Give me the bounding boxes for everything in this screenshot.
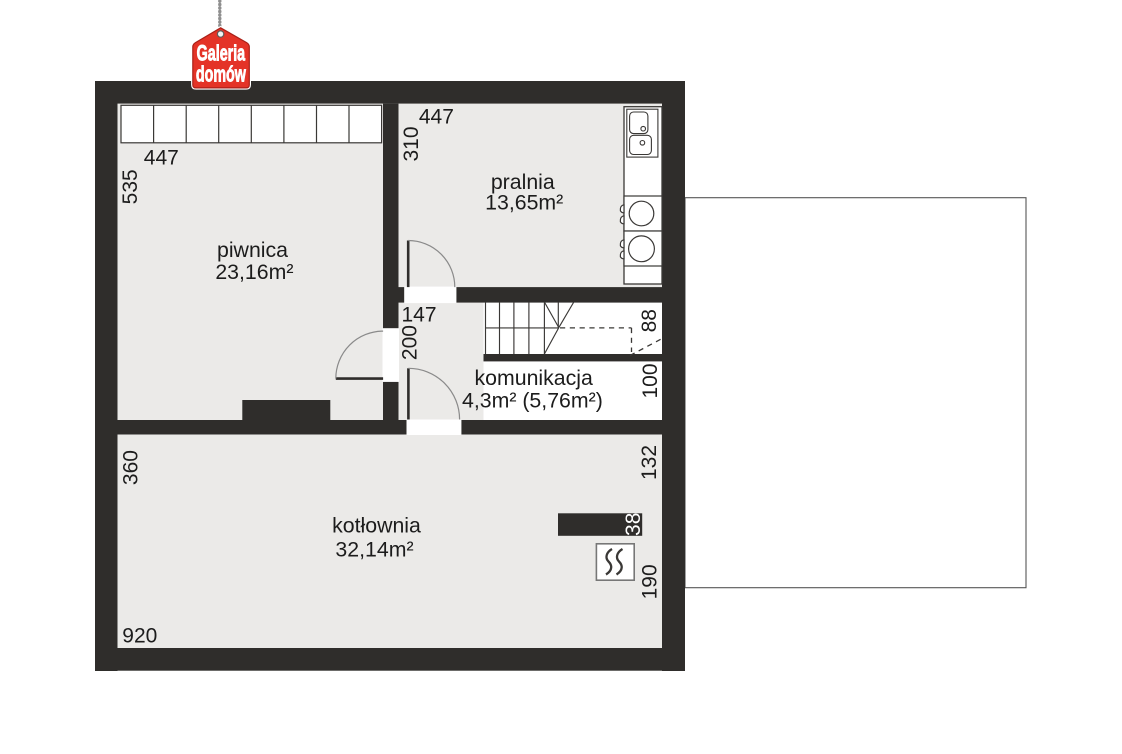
svg-text:360: 360 [120, 450, 143, 485]
svg-text:komunikacja: komunikacja [475, 366, 594, 390]
svg-text:147: 147 [401, 304, 436, 327]
svg-text:310: 310 [400, 126, 423, 161]
svg-text:32,14m²: 32,14m² [335, 538, 413, 562]
svg-text:535: 535 [119, 169, 142, 204]
svg-text:domów: domów [196, 61, 246, 86]
svg-text:447: 447 [144, 146, 179, 169]
svg-text:4,3m² (5,76m²): 4,3m² (5,76m²) [462, 389, 603, 413]
svg-text:piwnica: piwnica [217, 238, 288, 262]
svg-text:kotłownia: kotłownia [332, 514, 421, 538]
svg-text:13,65m²: 13,65m² [485, 191, 563, 215]
svg-text:100: 100 [639, 363, 662, 398]
svg-text:132: 132 [638, 445, 661, 480]
svg-text:23,16m²: 23,16m² [215, 260, 293, 284]
svg-text:88: 88 [638, 309, 661, 332]
svg-text:190: 190 [639, 564, 662, 599]
svg-text:38: 38 [622, 513, 645, 536]
svg-text:200: 200 [399, 325, 422, 360]
svg-text:447: 447 [419, 106, 454, 129]
svg-text:920: 920 [122, 624, 157, 647]
